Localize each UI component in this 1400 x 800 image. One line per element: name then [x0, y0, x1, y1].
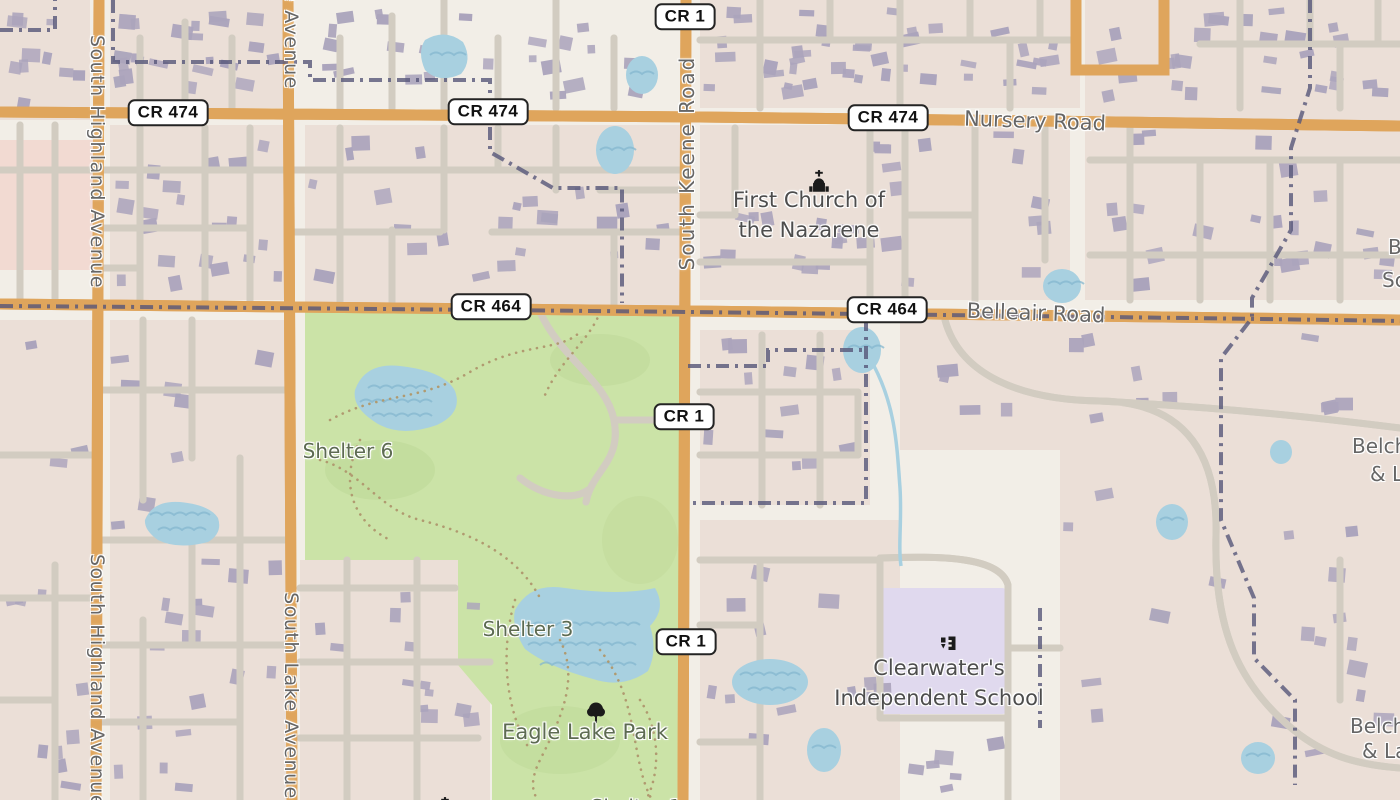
street-name-label: South Lake Avenue: [280, 0, 302, 90]
route-shield: CR 1: [656, 628, 717, 655]
partial-place-label: Shelter 1: [591, 795, 682, 800]
street-name-label: Belleair Road: [966, 299, 1105, 328]
poi-label-line: Shelter 3: [483, 615, 574, 643]
poi-label: First Church ofthe Nazarene: [733, 186, 885, 246]
street-name-label: South Highland Avenue: [86, 554, 108, 800]
poi-label: Clearwater'sIndependent School: [834, 654, 1044, 714]
route-shield: CR 474: [128, 99, 209, 126]
poi-label-line: Shelter 6: [303, 437, 394, 465]
poi-label: Shelter 6: [303, 437, 394, 465]
map-overlay-labels: CR 1CR 474CR 474CR 474CR 464CR 464CR 1CR…: [0, 0, 1400, 800]
partial-place-label: Belch: [1350, 714, 1400, 738]
partial-place-label: Belch: [1352, 434, 1400, 458]
street-name-label: South Keene Road: [675, 56, 699, 271]
partial-place-label: B: [1388, 235, 1400, 259]
route-shield: CR 474: [448, 98, 529, 125]
poi-label: Shelter 3: [483, 615, 574, 643]
street-name-label: South Lake Avenue: [280, 592, 302, 800]
map-canvas[interactable]: CR 1CR 474CR 474CR 474CR 464CR 464CR 1CR…: [0, 0, 1400, 800]
street-name-label: Nursery Road: [964, 107, 1107, 136]
route-shield: CR 464: [451, 293, 532, 320]
poi-label-line: Eagle Lake Park: [502, 718, 668, 748]
poi-label-line: the Nazarene: [733, 216, 885, 246]
poi-label: Eagle Lake Park: [502, 718, 668, 748]
partial-place-label: & La: [1362, 739, 1400, 763]
route-shield: CR 474: [848, 104, 929, 131]
route-shield: CR 464: [847, 296, 928, 323]
route-shield: CR 1: [654, 403, 715, 430]
street-name-label: South Highland Avenue: [86, 35, 108, 289]
poi-label-line: Clearwater's: [834, 654, 1044, 684]
partial-place-label: Sc: [1382, 268, 1400, 292]
partial-place-label: & L: [1370, 462, 1400, 486]
poi-label-line: First Church of: [733, 186, 885, 216]
route-shield: CR 1: [655, 3, 716, 30]
poi-label-line: Independent School: [834, 684, 1044, 714]
